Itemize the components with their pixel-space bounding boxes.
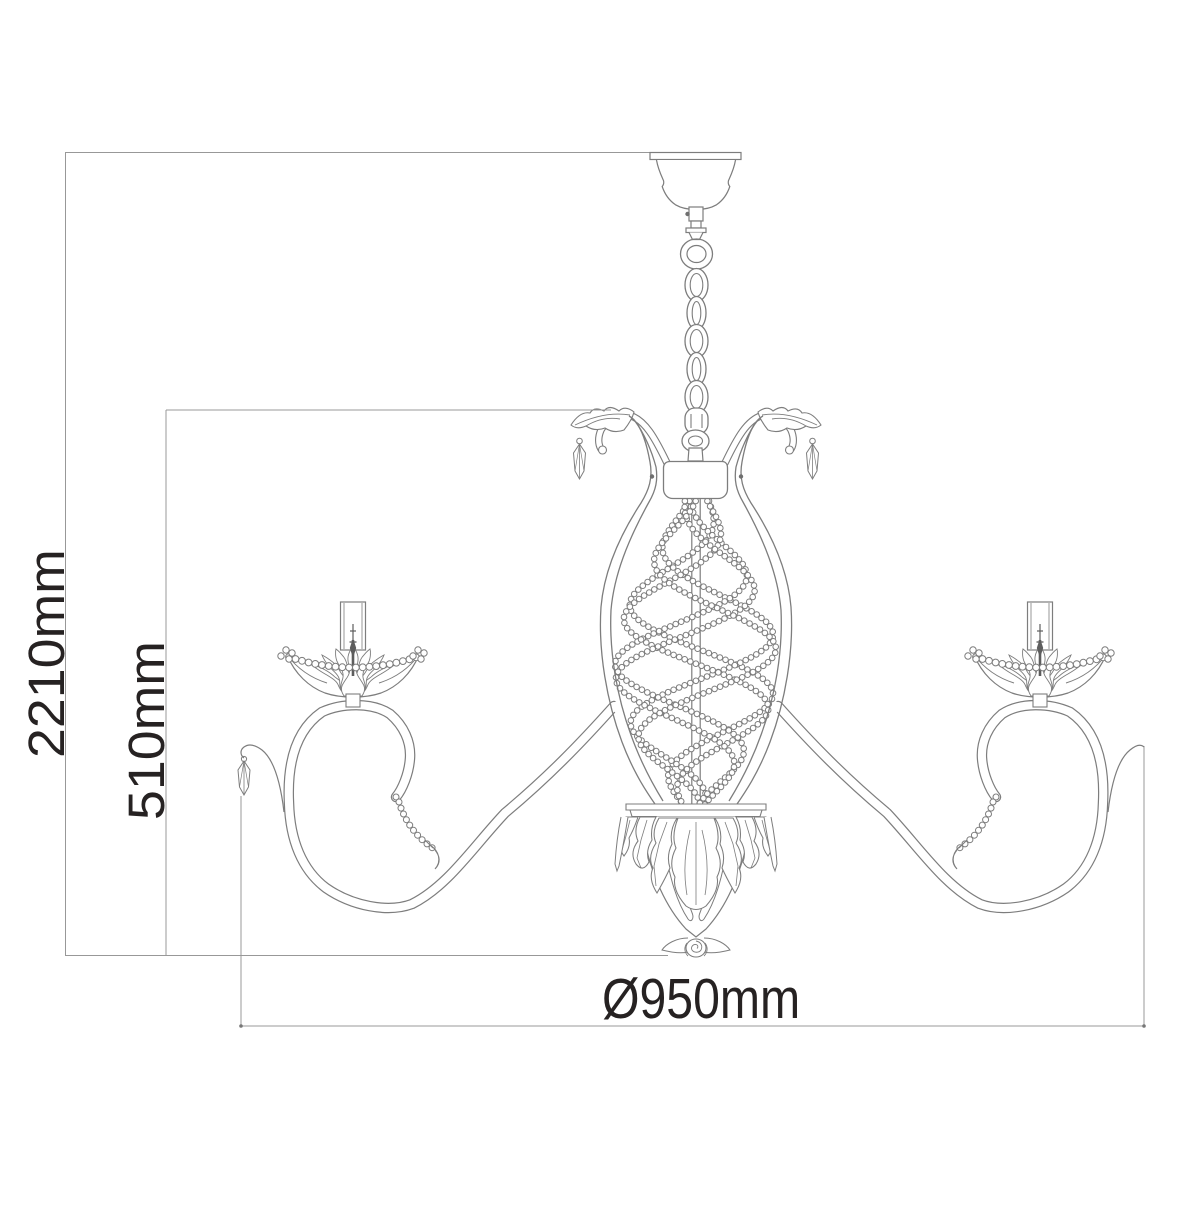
- svg-text:510mm: 510mm: [119, 641, 175, 820]
- svg-text:2210mm: 2210mm: [19, 549, 75, 758]
- svg-text:Ø950mm: Ø950mm: [602, 967, 800, 1031]
